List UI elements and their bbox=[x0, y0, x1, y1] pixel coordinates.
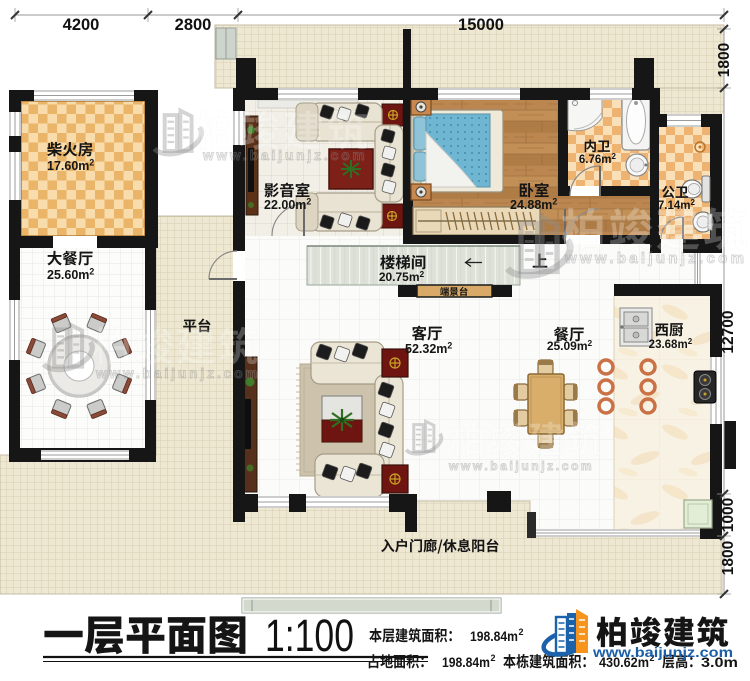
svg-text:24.88m2: 24.88m2 bbox=[510, 197, 557, 212]
svg-text:www.baijunjz.com: www.baijunjz.com bbox=[95, 366, 261, 381]
svg-text:7.14m2: 7.14m2 bbox=[658, 198, 696, 212]
svg-text:20.75m2: 20.75m2 bbox=[379, 269, 425, 284]
svg-text:www.baijunjz.com: www.baijunjz.com bbox=[202, 148, 368, 163]
svg-text:17.60m2: 17.60m2 bbox=[47, 158, 94, 173]
svg-text:22.00m2: 22.00m2 bbox=[264, 197, 311, 212]
svg-text:1800: 1800 bbox=[720, 541, 737, 575]
svg-text:www.baijunjz.com: www.baijunjz.com bbox=[448, 459, 594, 473]
svg-text:15000: 15000 bbox=[458, 16, 504, 34]
svg-text:23.68m2: 23.68m2 bbox=[649, 337, 693, 351]
svg-text:www.baijunjz.com: www.baijunjz.com bbox=[592, 644, 733, 660]
svg-text:2800: 2800 bbox=[175, 16, 212, 34]
svg-text:25.09m2: 25.09m2 bbox=[547, 338, 593, 353]
svg-text:1:100: 1:100 bbox=[265, 610, 354, 661]
svg-text:2: 2 bbox=[519, 627, 524, 637]
svg-text:www.baijunjz.com: www.baijunjz.com bbox=[564, 250, 747, 267]
svg-text:52.32m2: 52.32m2 bbox=[405, 341, 452, 356]
svg-text:198.84m: 198.84m bbox=[442, 654, 490, 670]
svg-text:25.60m2: 25.60m2 bbox=[47, 267, 94, 282]
svg-text:2: 2 bbox=[491, 653, 496, 663]
svg-text:4200: 4200 bbox=[63, 16, 100, 34]
svg-text:1800: 1800 bbox=[716, 43, 733, 77]
svg-text:12700: 12700 bbox=[720, 310, 737, 353]
svg-text:6.76m2: 6.76m2 bbox=[579, 152, 617, 166]
svg-text:1000: 1000 bbox=[720, 498, 737, 532]
svg-text:198.84m: 198.84m bbox=[470, 628, 518, 644]
